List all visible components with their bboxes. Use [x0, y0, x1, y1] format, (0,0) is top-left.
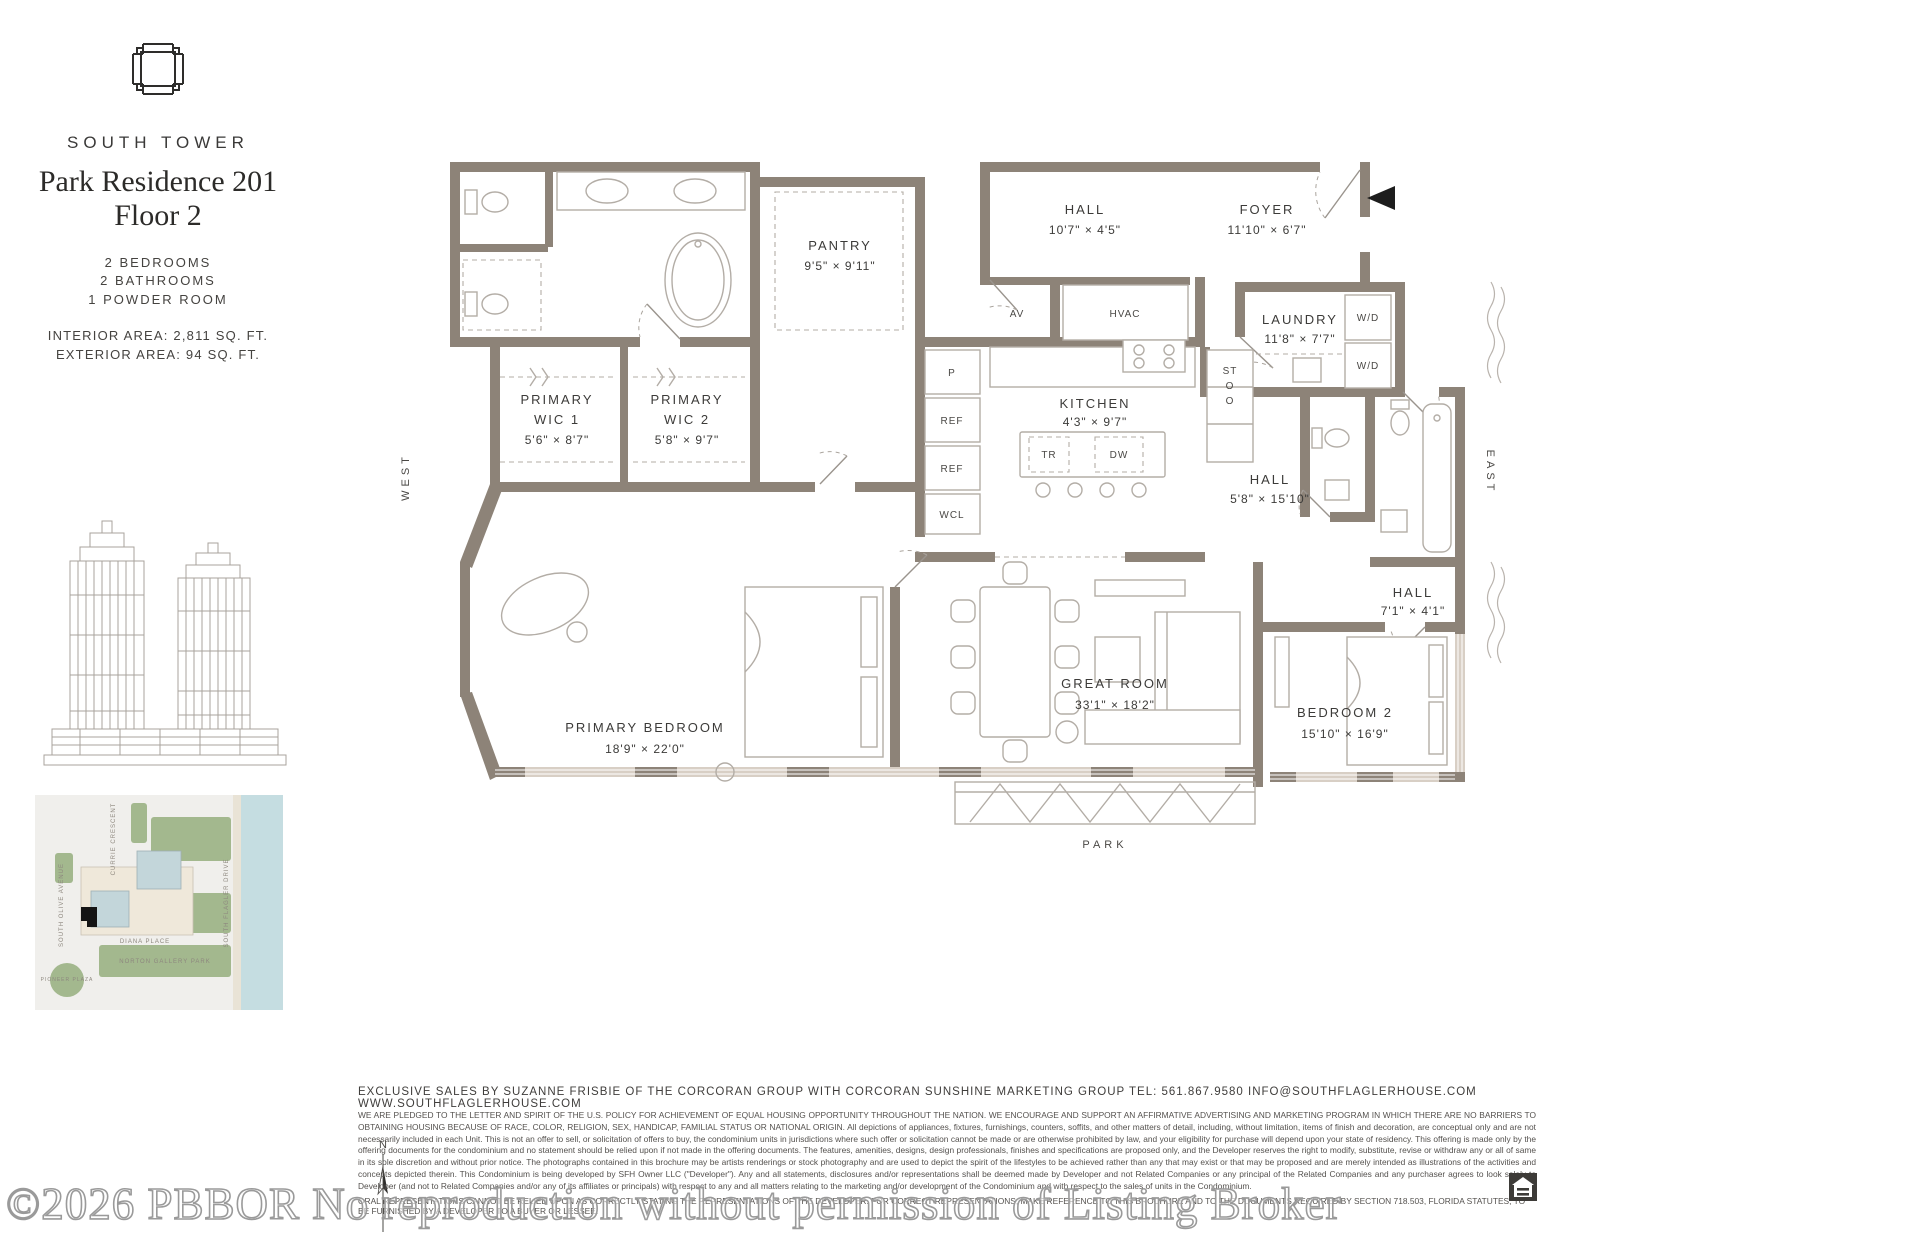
pantry-cab-label: P — [948, 368, 956, 379]
range-icon — [1123, 340, 1185, 372]
bedroom2-bed — [1347, 637, 1447, 765]
area-summary: INTERIOR AREA: 2,811 SQ. FT. EXTERIOR AR… — [18, 327, 298, 365]
street-diana-place: DIANA PLACE — [120, 939, 170, 945]
toilet-icon — [482, 192, 508, 212]
foyer-label: FOYER — [1240, 202, 1295, 217]
wic2-dims: 5'8" × 9'7" — [655, 433, 719, 447]
site-map: CURRIE CRESCENT SOUTH OLIVE AVENUE SOUTH… — [35, 795, 283, 1010]
plaza-pioneer: PIONEER PLAZA — [41, 977, 94, 983]
powder-toilet — [1325, 429, 1349, 447]
sink-icon — [586, 179, 628, 203]
ref2-label: REF — [941, 464, 964, 475]
primary-bedroom-label: PRIMARY BEDROOM — [565, 720, 725, 735]
right-tower-shaft — [178, 578, 250, 729]
round-side-table — [1056, 721, 1078, 743]
map-shore — [233, 795, 241, 1010]
hall3-dims: 7'1" × 4'1" — [1381, 604, 1445, 618]
foyer-dims: 11'10" × 6'7" — [1228, 223, 1307, 237]
kitchen-label: KITCHEN — [1059, 396, 1130, 411]
entry-arrow-icon — [1367, 186, 1395, 210]
podium — [52, 729, 278, 755]
bedroom2-dims: 15'10" × 16'9" — [1301, 727, 1389, 741]
west-label: WEST — [400, 453, 412, 501]
chaise-lounge — [492, 561, 598, 648]
wic2-label-l1: PRIMARY — [651, 392, 724, 407]
street-south-olive: SOUTH OLIVE AVENUE — [59, 863, 65, 947]
bathrooms-count: 2 BATHROOMS — [18, 272, 298, 290]
bath2-toilet — [1391, 411, 1409, 435]
bath2-tub — [1423, 404, 1451, 552]
street-currie-crescent: CURRIE CRESCENT — [111, 803, 117, 876]
toilet-tank-2 — [465, 292, 477, 316]
dryer-label: W/D — [1357, 361, 1379, 372]
primary-bedroom-dims: 18'9" × 22'0" — [605, 742, 685, 756]
laundry-sink — [1293, 358, 1321, 382]
st-label-l3: O — [1226, 396, 1235, 407]
building-illustration — [40, 515, 290, 773]
map-north-tower — [137, 851, 181, 889]
residence-title: Park Residence 201 Floor 2 — [18, 165, 298, 232]
copyright-watermark: ©2026 PBBOR No reproduction without perm… — [6, 1178, 1342, 1230]
great-room-dims: 33'1" × 18'2" — [1075, 698, 1155, 712]
equal-housing-icon — [1508, 1172, 1538, 1204]
bath2-sink — [1381, 510, 1407, 532]
dw-label: DW — [1110, 450, 1129, 461]
park-label: PARK — [1082, 839, 1127, 851]
hall3-label: HALL — [1393, 585, 1434, 600]
bedroom2-label: BEDROOM 2 — [1297, 705, 1393, 720]
great-room-furniture — [951, 562, 1240, 762]
ref-label: REF — [941, 416, 964, 427]
terrace — [955, 782, 1255, 824]
unit-summary: 2 BEDROOMS 2 BATHROOMS 1 POWDER ROOM — [18, 254, 298, 309]
brochure-page: SOUTH TOWER Park Residence 201 Floor 2 2… — [0, 0, 1920, 1242]
podium-steps — [44, 755, 286, 765]
residence-title-line2: Floor 2 — [18, 199, 298, 233]
east-label: EAST — [1484, 450, 1496, 495]
wcl-label: WCL — [939, 510, 964, 521]
powder-room-count: 1 POWDER ROOM — [18, 291, 298, 309]
double-vanity — [557, 172, 745, 210]
pantry-dims: 9'5" × 9'11" — [804, 259, 875, 273]
left-tower-shaft — [70, 561, 144, 729]
bedrooms-count: 2 BEDROOMS — [18, 254, 298, 272]
toilet-icon-2 — [482, 294, 508, 314]
floor-plan: PANTRY 9'5" × 9'11" HALL 10'7" × 4'5" FO… — [395, 132, 1535, 857]
sofa-chaise — [1085, 710, 1240, 744]
av-label: AV — [1010, 309, 1025, 320]
map-water — [241, 795, 283, 1010]
primary-bed — [745, 587, 883, 757]
wic2-label-l2: WIC 2 — [664, 412, 710, 427]
st-label-l1: ST — [1223, 366, 1238, 377]
kitchen-dims: 4'3" × 9'7" — [1063, 415, 1127, 429]
primary-bedroom-furniture — [492, 561, 883, 781]
tower-name: SOUTH TOWER — [18, 133, 298, 153]
dining-table — [980, 587, 1050, 737]
bedroom2-furniture — [1275, 637, 1447, 765]
great-room-label: GREAT ROOM — [1061, 676, 1169, 691]
hall2-label: HALL — [1250, 472, 1291, 487]
pantry-label: PANTRY — [808, 238, 872, 253]
bathroom-2 — [1381, 400, 1451, 552]
interior-area: INTERIOR AREA: 2,811 SQ. FT. — [18, 327, 298, 346]
washer-label: W/D — [1357, 313, 1379, 324]
sink-icon-2 — [674, 179, 716, 203]
hall1-dims: 10'7" × 4'5" — [1049, 223, 1121, 237]
header-block: SOUTH TOWER Park Residence 201 Floor 2 2… — [18, 40, 298, 364]
laundry-dims: 11'8" × 7'7" — [1264, 332, 1335, 346]
hall2-dims: 5'8" × 15'10" — [1230, 492, 1310, 506]
powder-toilet-tank — [1312, 428, 1322, 448]
bedroom2-closet — [1275, 637, 1289, 707]
st-label-l2: O — [1226, 381, 1235, 392]
sales-contact-line: EXCLUSIVE SALES BY SUZANNE FRISBIE OF TH… — [358, 1086, 1543, 1110]
powder-sink — [1325, 480, 1349, 500]
park-norton-gallery: NORTON GALLERY PARK — [119, 959, 210, 965]
logo-inner-square — [141, 52, 175, 86]
hall1-label: HALL — [1065, 202, 1106, 217]
entry-door — [1316, 170, 1395, 218]
residence-title-line1: Park Residence 201 — [18, 165, 298, 199]
wic1-dims: 5'6" × 8'7" — [525, 433, 589, 447]
hvac-label: HVAC — [1109, 309, 1140, 320]
exterior-area: EXTERIOR AREA: 94 SQ. FT. — [18, 346, 298, 365]
wic1-label-l1: PRIMARY — [521, 392, 594, 407]
brand-logo — [129, 40, 187, 98]
laundry-label: LAUNDRY — [1262, 312, 1338, 327]
bath2-toilet-tank — [1391, 400, 1409, 409]
tr-label: TR — [1041, 450, 1056, 461]
media-console — [1095, 580, 1185, 596]
powder-room — [1312, 428, 1349, 500]
toilet-tank — [465, 190, 477, 214]
wic1-label-l2: WIC 1 — [534, 412, 580, 427]
street-south-flagler: SOUTH FLAGLER DRIVE — [224, 858, 230, 947]
